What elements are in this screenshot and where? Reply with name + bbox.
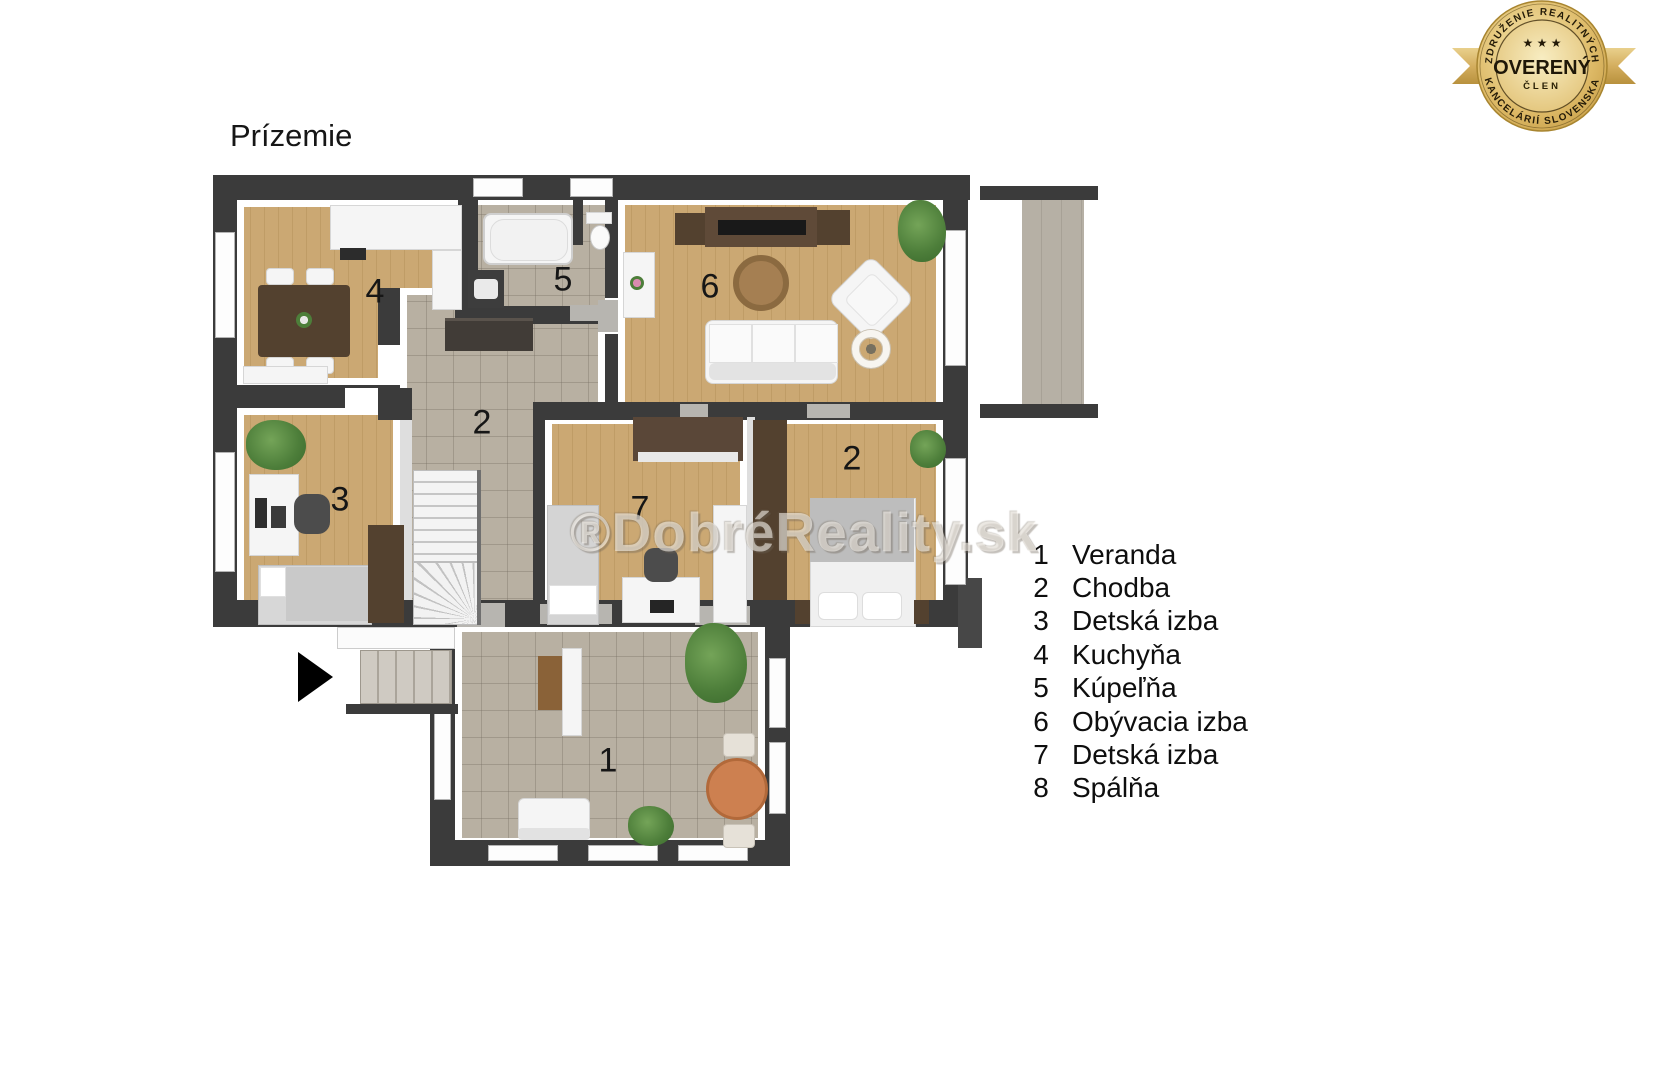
room-legend: 1Veranda2Chodba3Detská izba4Kuchyňa5Kúpe… (1028, 538, 1248, 805)
staircase-railing (477, 470, 481, 625)
legend-row: 8Spálňa (1028, 772, 1248, 805)
legend-number: 3 (1028, 605, 1054, 637)
legend-label: Chodba (1072, 572, 1170, 604)
window-bedroom (945, 458, 966, 585)
legend-label: Detská izba (1072, 739, 1218, 771)
veranda-armchair-back (518, 828, 590, 840)
doormat-bedroom (807, 404, 850, 418)
dining-chair (266, 268, 294, 285)
plant-veranda-2 (628, 806, 674, 846)
table-flowers (296, 312, 312, 328)
plant-bedroom (910, 430, 946, 468)
side-table-flowers (630, 276, 644, 290)
legend-number: 6 (1028, 706, 1054, 738)
legend-row: 6Obývacia izba (1028, 705, 1248, 738)
legend-label: Veranda (1072, 539, 1176, 571)
veranda-chair (723, 733, 755, 757)
window-kids-room1 (215, 452, 235, 572)
window-living-room (945, 230, 966, 366)
blanket (286, 567, 368, 621)
legend-row: 7Detská izba (1028, 738, 1248, 771)
verified-member-badge: ZDRUŽENIE REALITNÝCH KANCELÁRIÍ SLOVENSK… (1444, 0, 1644, 140)
tv-screen (718, 220, 806, 235)
room-number-marker: 2 (843, 440, 862, 479)
coffee-table (733, 255, 789, 311)
plant-living-room (898, 200, 946, 262)
entrance-landing (337, 627, 455, 649)
window-veranda-bottom-2 (588, 845, 658, 861)
toilet-bowl (590, 225, 610, 250)
legend-number: 2 (1028, 572, 1054, 604)
doormat-bathroom (570, 305, 607, 321)
room-number-marker: 1 (599, 742, 618, 781)
tv-unit-left (675, 213, 705, 245)
entrance-steps-edge (346, 704, 458, 714)
badge-stars: ★ ★ ★ (1523, 36, 1562, 50)
staircase-winder-steps (413, 562, 478, 625)
badge-sub-text: ČLEN (1523, 80, 1561, 92)
kitchen-bench (243, 366, 328, 384)
room-number-marker: 7 (631, 490, 650, 529)
entrance-steps (360, 650, 452, 704)
legend-row: 4Kuchyňa (1028, 638, 1248, 671)
window-veranda-right-2 (769, 742, 786, 814)
window-kitchen (215, 232, 235, 338)
cabinet-kids-room2 (713, 505, 747, 623)
office-chair-kids-room2 (644, 548, 678, 582)
wardrobe-bedroom (753, 420, 787, 600)
veranda-partition (562, 648, 582, 736)
legend-number: 8 (1028, 772, 1054, 804)
nightstand (795, 600, 810, 624)
sofa-backrest (709, 363, 836, 380)
wall-terrace-bottom (980, 404, 1098, 418)
bed-cover (810, 498, 914, 562)
window-bathroom-1 (473, 178, 523, 197)
pillow (818, 592, 858, 620)
wardrobe-shelf (638, 452, 738, 462)
legend-label: Kuchyňa (1072, 639, 1181, 671)
legend-row: 1Veranda (1028, 538, 1248, 571)
wall-junction (378, 388, 412, 420)
room-number-marker: 4 (366, 273, 385, 312)
nightstand (914, 600, 929, 624)
tv-unit-right (817, 210, 850, 245)
veranda-chair (723, 824, 755, 848)
office-chair-kids-room1 (294, 494, 330, 534)
ceiling-fan-icon (852, 330, 890, 368)
veranda-console (538, 656, 562, 710)
legend-number: 7 (1028, 739, 1054, 771)
pillow (260, 567, 286, 597)
legend-number: 4 (1028, 639, 1054, 671)
monitor (255, 498, 267, 528)
sofa-cushion (795, 324, 838, 363)
kitchen-cooktop (340, 248, 366, 260)
terrace-deck (1022, 200, 1084, 405)
window-bathroom-2 (570, 178, 613, 197)
room-number-marker: 3 (331, 481, 350, 520)
legend-number: 1 (1028, 539, 1054, 571)
laptop (271, 506, 286, 528)
staircase-straight-flight (413, 470, 478, 562)
toilet-tank (586, 212, 612, 224)
legend-row: 3Detská izba (1028, 605, 1248, 638)
legend-label: Detská izba (1072, 605, 1218, 637)
legend-label: Obývacia izba (1072, 706, 1248, 738)
legend-label: Spálňa (1072, 772, 1159, 804)
pillow (549, 585, 597, 615)
bathtub-basin (490, 219, 568, 261)
sofa-cushion (752, 324, 795, 363)
badge-main-text: OVERENÝ (1493, 55, 1591, 79)
doormat-kids-room2 (680, 404, 708, 418)
window-veranda-bottom-1 (488, 845, 558, 861)
plant-kids-room1 (246, 420, 306, 470)
veranda-table (706, 758, 768, 820)
room-number-marker: 6 (701, 268, 720, 307)
wall-hallway-kidsroom2 (533, 417, 545, 625)
laptop (650, 600, 674, 613)
legend-row: 2Chodba (1028, 571, 1248, 604)
door-kitchen-hallway (378, 345, 400, 385)
room-number-marker: 2 (473, 404, 492, 443)
wall-exterior-block (958, 578, 982, 648)
window-veranda-left (434, 712, 451, 800)
door-kids-room1 (345, 388, 378, 408)
wardrobe-kids-room1 (368, 525, 404, 623)
entrance-arrow-icon (298, 652, 333, 702)
pillow (862, 592, 902, 620)
legend-row: 5Kúpeľňa (1028, 672, 1248, 705)
kitchen-counter (330, 205, 462, 250)
hallway-sideboard (445, 318, 533, 351)
legend-number: 5 (1028, 672, 1054, 704)
window-veranda-right-1 (769, 658, 786, 728)
wall-terrace-top (980, 186, 1098, 200)
room-number-marker: 5 (554, 261, 573, 300)
dining-chair (306, 268, 334, 285)
legend-label: Kúpeľňa (1072, 672, 1177, 704)
sink-basin (474, 279, 498, 299)
page-title: Prízemie (230, 118, 352, 154)
sofa-cushion (709, 324, 752, 363)
wall-bathroom-divider (573, 200, 583, 245)
kitchen-counter-side (432, 250, 462, 310)
plant-veranda-1 (685, 623, 747, 703)
